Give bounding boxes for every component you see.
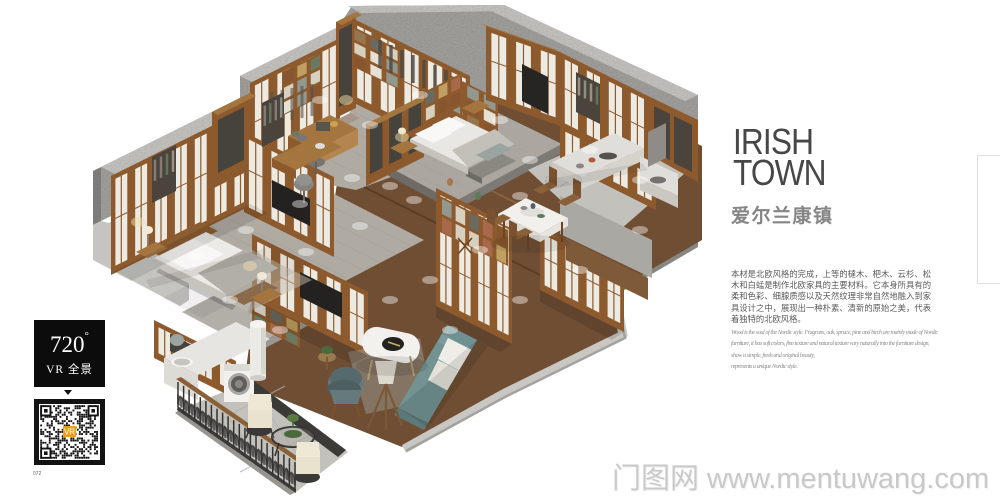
svg-text:VR: VR bbox=[64, 428, 75, 437]
